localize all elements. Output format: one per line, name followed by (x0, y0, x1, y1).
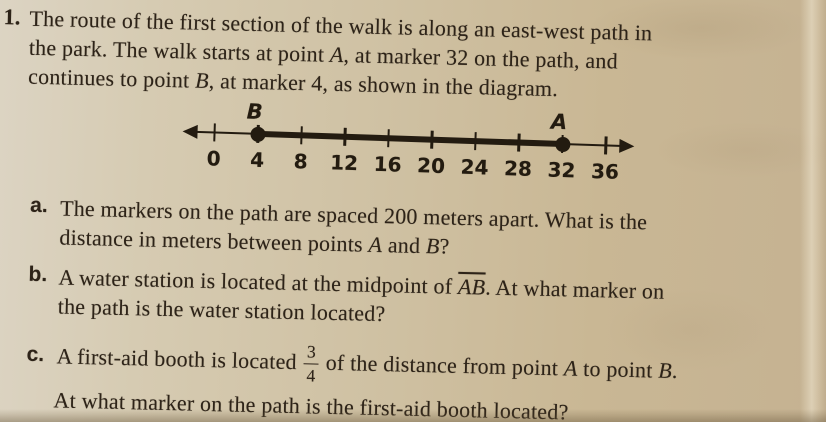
tick-label: 28 (498, 156, 539, 181)
tick-label: 16 (367, 152, 408, 177)
page-bottom-shadow (0, 409, 826, 422)
text-segment: and (382, 232, 426, 258)
text-segment: B (195, 68, 209, 93)
number-line-diagram: 04812162024283236BA (175, 92, 678, 205)
part-c-line-1: A first-aid booth is located 3 4 of the … (56, 331, 678, 396)
tick-mark (474, 132, 477, 150)
point-dot (555, 136, 570, 151)
page-edge-highlight (800, 0, 826, 422)
text-segment: the path is the water station located? (58, 294, 386, 327)
point-label: A (545, 109, 574, 134)
part-b-label: b. (28, 263, 47, 287)
tick-label: 8 (280, 149, 321, 174)
text-segment: B (426, 233, 440, 258)
part-c-line1-post: of the distance from point A to point B. (325, 348, 678, 385)
tick-mark (300, 126, 303, 144)
tick-label: 36 (585, 159, 626, 184)
tick-mark (387, 129, 390, 147)
tick-label: 0 (193, 146, 234, 171)
fraction-numerator: 3 (304, 342, 319, 364)
tick-label: 32 (541, 157, 582, 182)
point-dot (250, 126, 265, 141)
part-c-label: c. (26, 343, 44, 367)
tick-label: 4 (237, 147, 278, 172)
part-a-label: a. (30, 194, 48, 218)
text-segment: . At what marker on (485, 275, 665, 304)
fraction-denominator: 4 (306, 364, 315, 385)
textbook-page-photo: 1. The route of the first section of the… (0, 0, 826, 422)
tick-mark (604, 136, 607, 154)
tick-mark (213, 123, 216, 141)
text-segment: continues to point (28, 64, 195, 93)
problem-statement: The route of the first section of the wa… (28, 4, 653, 106)
text-segment: to point (577, 356, 658, 383)
text-segment: AB (458, 274, 486, 300)
point-label: B (240, 99, 269, 124)
page-content: 1. The route of the first section of the… (0, 0, 826, 422)
fraction-three-fourths: 3 4 (303, 342, 319, 384)
problem-number: 1. (3, 4, 20, 30)
axis-arrow-left-icon (182, 124, 197, 138)
text-segment: B (658, 358, 672, 383)
part-c-line1-pre: A first-aid booth is located (56, 342, 297, 377)
text-segment: distance in meters between points (59, 225, 369, 257)
tick-label: 24 (454, 154, 495, 179)
tick-mark (430, 131, 433, 149)
text-segment: A first-aid booth is located (56, 344, 297, 375)
text-segment: . (672, 358, 678, 383)
part-b-text: A water station is located at the midpoi… (57, 262, 664, 335)
text-segment: of the distance from point (325, 350, 564, 381)
tick-mark (517, 134, 520, 152)
tick-label: 12 (324, 150, 365, 175)
text-segment: , at marker 32 on the path, and (343, 42, 618, 73)
part-a-text: The markers on the path are spaced 200 m… (59, 193, 647, 265)
text-segment: ? (439, 234, 450, 259)
text-segment: A (330, 42, 344, 67)
text-segment: A (368, 232, 382, 257)
tick-mark (343, 128, 346, 146)
text-segment: A (564, 356, 578, 381)
axis-arrow-right-icon (619, 139, 634, 153)
tick-label: 20 (411, 153, 452, 178)
